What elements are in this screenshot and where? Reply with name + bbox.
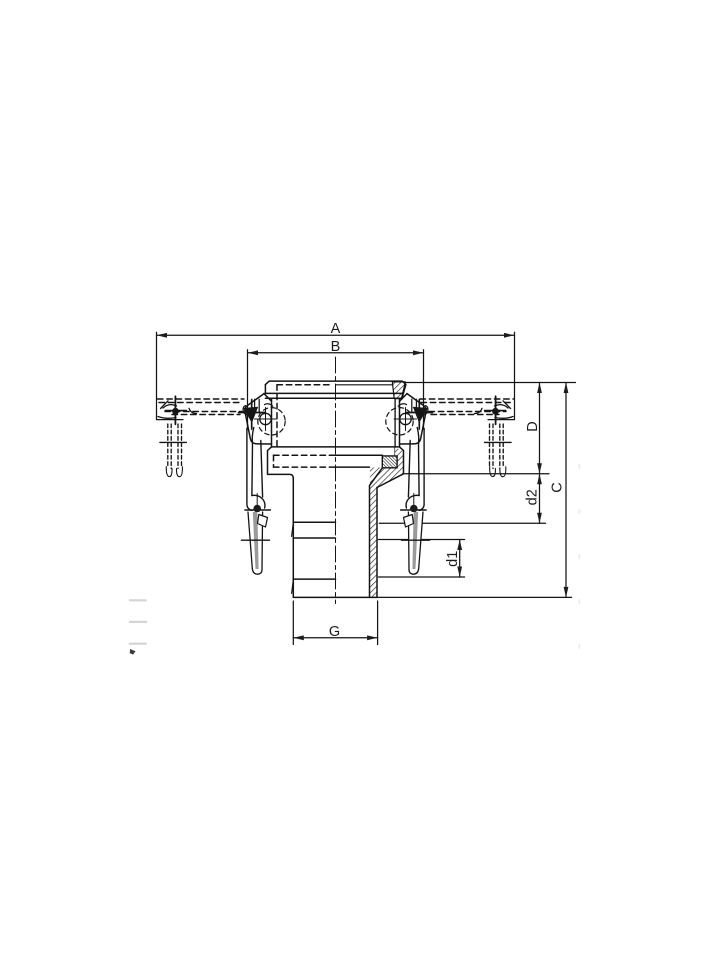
svg-text:d2: d2 xyxy=(525,489,541,505)
svg-text:D: D xyxy=(525,421,541,431)
svg-text:C: C xyxy=(550,482,566,492)
svg-text:G: G xyxy=(329,624,340,640)
svg-text:d1: d1 xyxy=(445,551,461,567)
svg-text:B: B xyxy=(331,339,341,355)
svg-text:A: A xyxy=(331,321,341,337)
